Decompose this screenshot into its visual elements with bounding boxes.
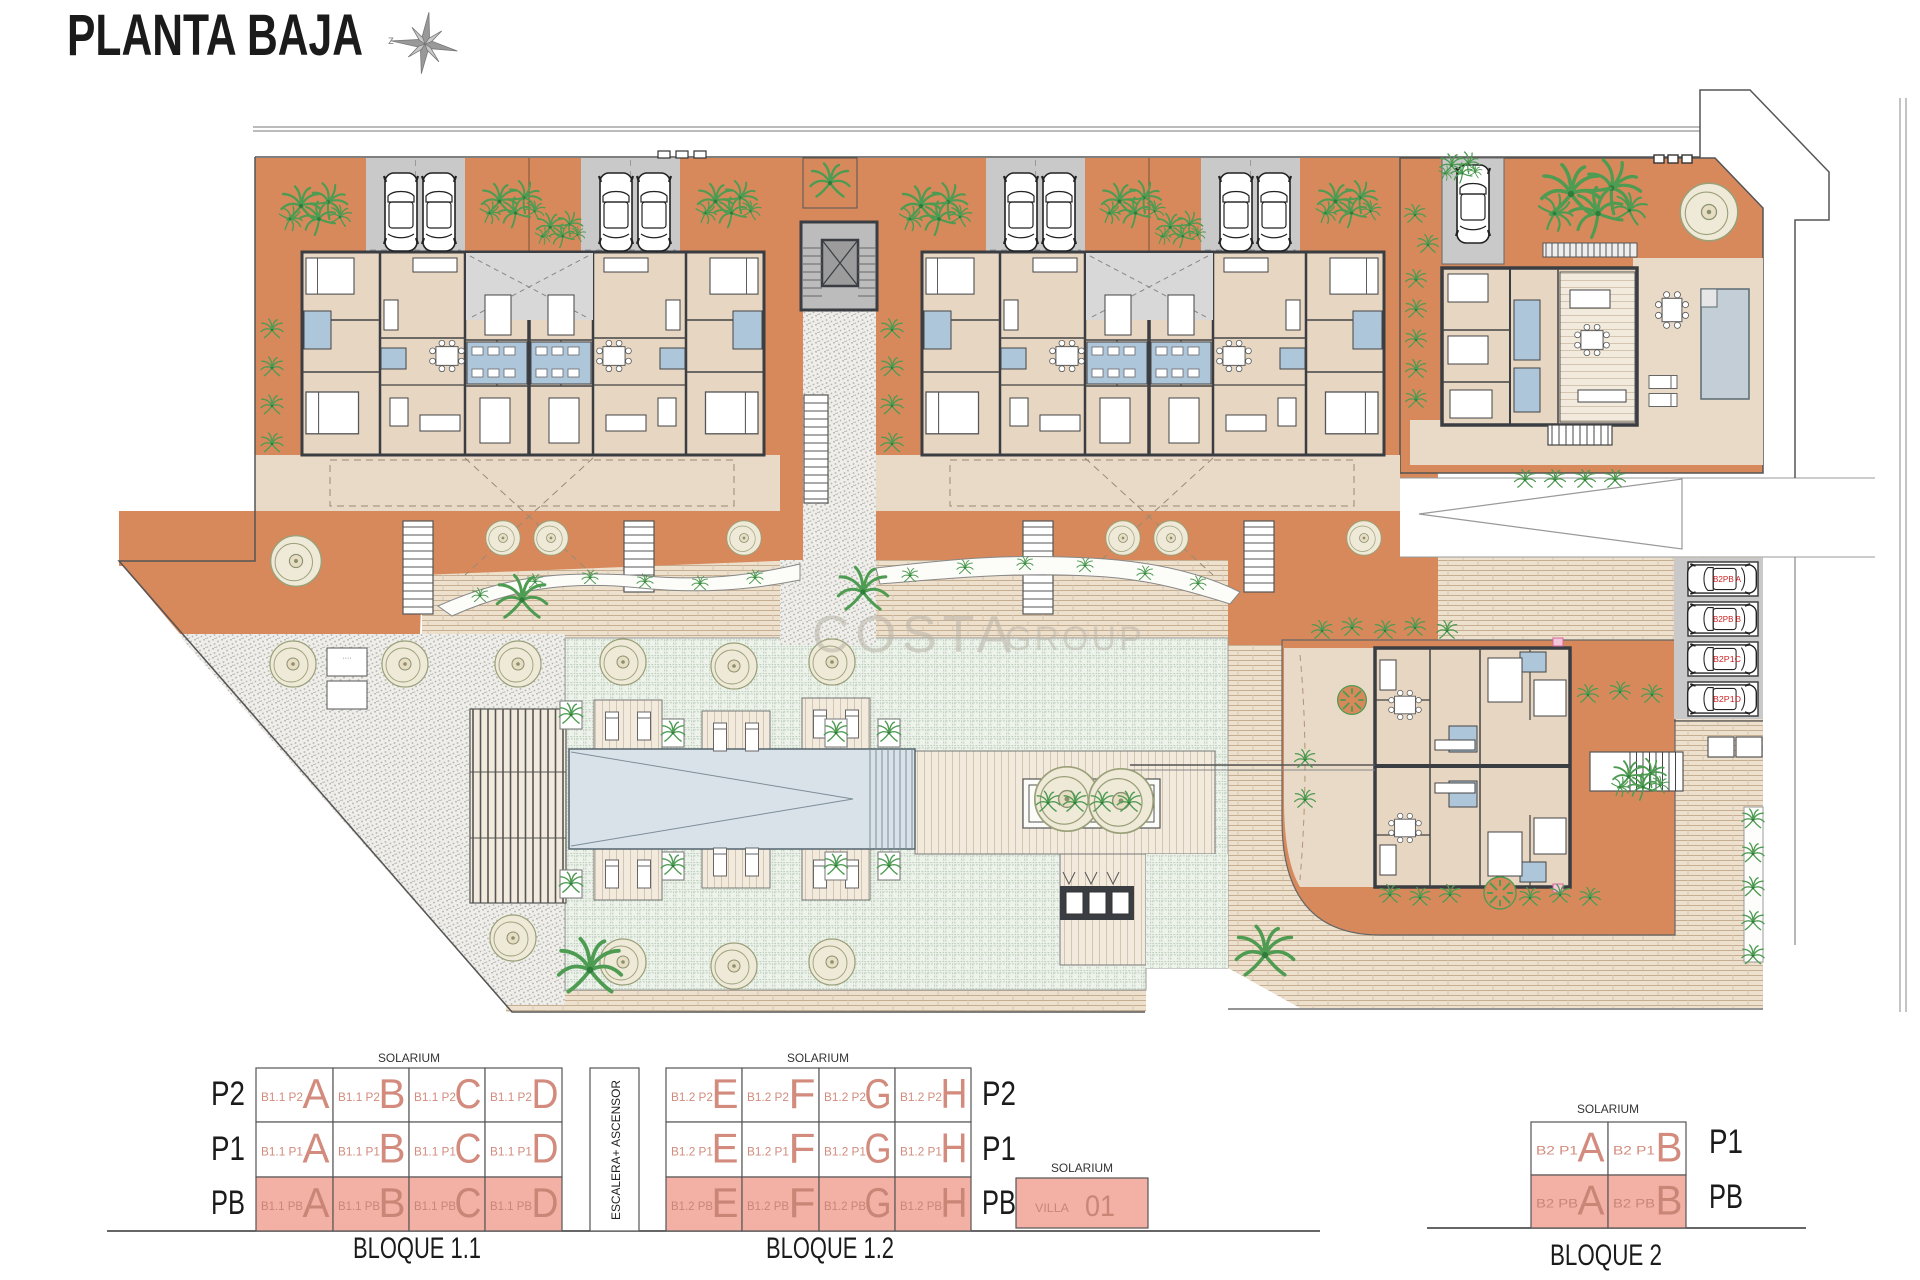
svg-text:z: z: [388, 33, 394, 47]
svg-text:BLOQUE 1.1: BLOQUE 1.1: [353, 1232, 481, 1265]
svg-text:B1.1 PB: B1.1 PB: [261, 1199, 303, 1213]
svg-text:ESCALERA+ ASCENSOR: ESCALERA+ ASCENSOR: [609, 1080, 623, 1220]
svg-text:B2 PB: B2 PB: [1536, 1197, 1578, 1211]
svg-text:G: G: [865, 1070, 892, 1117]
svg-text:B2 PB: B2 PB: [1613, 1197, 1655, 1211]
svg-text:H: H: [941, 1070, 968, 1117]
svg-text:B: B: [1656, 1124, 1683, 1171]
svg-text:B2P1C: B2P1C: [1713, 655, 1741, 664]
svg-text:SOLARIUM: SOLARIUM: [1051, 1161, 1113, 1175]
svg-text:A: A: [303, 1179, 330, 1226]
svg-text:BLOQUE 2: BLOQUE 2: [1550, 1239, 1662, 1272]
svg-text:D: D: [532, 1125, 559, 1172]
svg-text:B2P1D: B2P1D: [1713, 695, 1741, 704]
svg-text:PB: PB: [982, 1184, 1016, 1222]
svg-text:BLOQUE 1.2: BLOQUE 1.2: [766, 1232, 894, 1265]
svg-text:B1.2 P1: B1.2 P1: [824, 1145, 866, 1159]
svg-text:B1.2 PB: B1.2 PB: [824, 1199, 866, 1213]
svg-text:B1.1 P2: B1.1 P2: [261, 1090, 303, 1104]
svg-text:P1: P1: [211, 1130, 245, 1168]
svg-text:C: C: [455, 1179, 482, 1226]
svg-text:B: B: [1656, 1177, 1683, 1224]
svg-text:G: G: [865, 1179, 892, 1226]
svg-text:A: A: [1578, 1124, 1605, 1171]
svg-text:B1.1 PB: B1.1 PB: [338, 1199, 380, 1213]
svg-text:PB: PB: [211, 1184, 245, 1222]
svg-text:B1.2 P2: B1.2 P2: [747, 1090, 789, 1104]
svg-text:B1.1 P1: B1.1 P1: [490, 1145, 532, 1159]
svg-text:B1.2 PB: B1.2 PB: [747, 1199, 789, 1213]
svg-text:B1.1 PB: B1.1 PB: [414, 1199, 456, 1213]
svg-text:H: H: [941, 1179, 968, 1226]
svg-text:B1.2 PB: B1.2 PB: [671, 1199, 713, 1213]
svg-text:B1.2 P1: B1.2 P1: [900, 1145, 942, 1159]
svg-text:D: D: [532, 1070, 559, 1117]
svg-text:B1.1 P2: B1.1 P2: [338, 1090, 380, 1104]
svg-text:B1.1 P2: B1.1 P2: [490, 1090, 532, 1104]
svg-text:E: E: [712, 1070, 739, 1117]
svg-text:B1.1 P1: B1.1 P1: [414, 1145, 456, 1159]
svg-text:PB: PB: [1709, 1178, 1743, 1216]
svg-text:B: B: [379, 1070, 406, 1117]
svg-text:G: G: [865, 1125, 892, 1172]
svg-text:B1.2 P2: B1.2 P2: [900, 1090, 942, 1104]
svg-text:VILLA: VILLA: [1035, 1201, 1069, 1215]
svg-text:H: H: [941, 1125, 968, 1172]
svg-text:P1: P1: [982, 1130, 1016, 1168]
svg-text:B1.2 PB: B1.2 PB: [900, 1199, 942, 1213]
svg-text:B: B: [379, 1125, 406, 1172]
svg-text:SOLARIUM: SOLARIUM: [787, 1051, 849, 1065]
svg-text:P2: P2: [211, 1075, 245, 1113]
svg-text:E: E: [712, 1125, 739, 1172]
svg-text:C: C: [455, 1125, 482, 1172]
svg-text:A: A: [303, 1125, 330, 1172]
svg-text:P2: P2: [982, 1075, 1016, 1113]
svg-text:B: B: [379, 1179, 406, 1226]
svg-text:B2 P1: B2 P1: [1536, 1144, 1578, 1158]
svg-text:E: E: [712, 1179, 739, 1226]
svg-text:B1.2 P2: B1.2 P2: [671, 1090, 713, 1104]
svg-text:F: F: [789, 1070, 816, 1117]
svg-text:COSTA: COSTA: [812, 606, 1017, 664]
svg-text:B1.1 P1: B1.1 P1: [338, 1145, 380, 1159]
svg-text:P1: P1: [1709, 1123, 1743, 1161]
svg-text:B2 P1: B2 P1: [1613, 1144, 1655, 1158]
svg-text:····: ····: [342, 655, 351, 662]
svg-text:B1.2 P1: B1.2 P1: [671, 1145, 713, 1159]
svg-text:01: 01: [1085, 1190, 1115, 1223]
svg-text:F: F: [789, 1179, 816, 1226]
svg-text:PLANTA BAJA: PLANTA BAJA: [67, 3, 363, 68]
svg-text:B2PB A: B2PB A: [1713, 575, 1742, 584]
svg-text:GROUP: GROUP: [1005, 620, 1145, 658]
svg-text:F: F: [789, 1125, 816, 1172]
svg-text:B1.2 P1: B1.2 P1: [747, 1145, 789, 1159]
svg-text:B2PB B: B2PB B: [1713, 615, 1741, 624]
svg-text:C: C: [455, 1070, 482, 1117]
svg-text:B1.2 P2: B1.2 P2: [824, 1090, 866, 1104]
svg-text:B1.1 P2: B1.1 P2: [414, 1090, 456, 1104]
svg-text:D: D: [532, 1179, 559, 1226]
svg-text:B1.1 PB: B1.1 PB: [490, 1199, 532, 1213]
svg-text:A: A: [1578, 1177, 1605, 1224]
svg-text:SOLARIUM: SOLARIUM: [1577, 1102, 1639, 1116]
svg-text:B1.1 P1: B1.1 P1: [261, 1145, 303, 1159]
svg-text:SOLARIUM: SOLARIUM: [378, 1051, 440, 1065]
svg-text:A: A: [303, 1070, 330, 1117]
